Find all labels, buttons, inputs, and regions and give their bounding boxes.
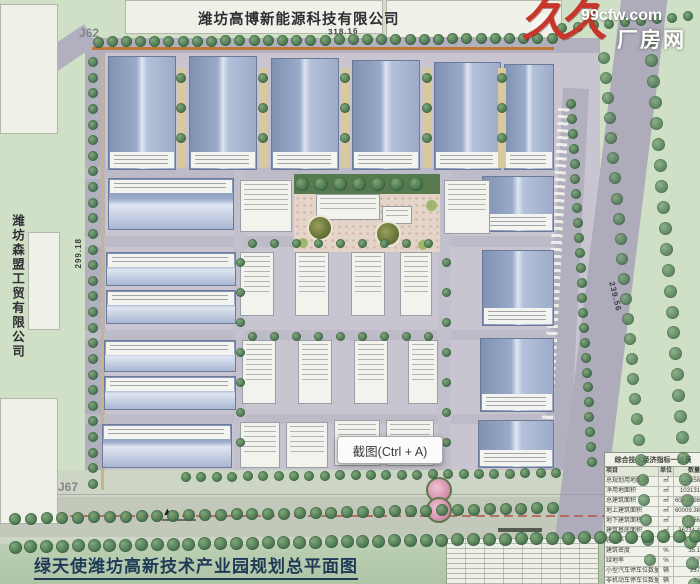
tree xyxy=(625,531,638,544)
tree xyxy=(9,541,22,554)
office-building xyxy=(240,180,292,232)
tree xyxy=(289,471,299,481)
tree xyxy=(270,239,279,248)
office-building xyxy=(286,422,328,468)
tree xyxy=(468,504,480,516)
offsite-building xyxy=(28,232,60,330)
gravel-strip xyxy=(423,68,431,168)
tree xyxy=(227,472,237,482)
building-annotation xyxy=(108,292,234,305)
tree xyxy=(649,96,662,109)
tree xyxy=(340,103,350,113)
tree xyxy=(104,511,116,523)
tree xyxy=(570,159,580,169)
tree xyxy=(657,530,670,543)
factory-building xyxy=(478,420,554,468)
gravel-strip xyxy=(177,68,185,168)
gravel-strip xyxy=(498,68,506,168)
tree xyxy=(422,103,432,113)
tree xyxy=(505,469,515,479)
tree xyxy=(647,75,660,88)
tree xyxy=(452,504,464,516)
watermark: 久久 99cfw.com 厂房网 xyxy=(525,0,700,56)
tree xyxy=(88,276,98,286)
tree xyxy=(88,229,98,239)
plaza-tree-circle xyxy=(307,215,333,241)
tree xyxy=(358,332,367,341)
tree xyxy=(676,431,689,444)
tree xyxy=(689,530,700,543)
tree xyxy=(88,539,101,552)
tree xyxy=(515,532,528,545)
tree xyxy=(404,534,417,547)
left-company-label: 潍坊森盟工贸有限公司 xyxy=(8,214,27,354)
tree xyxy=(88,198,98,208)
building-annotation xyxy=(273,152,337,168)
tree xyxy=(206,36,217,47)
gravel-strip xyxy=(341,68,349,168)
tree xyxy=(88,182,98,192)
tree xyxy=(604,112,616,124)
factory-building xyxy=(102,424,232,468)
tree xyxy=(650,117,663,130)
tree xyxy=(474,469,484,479)
tree xyxy=(320,471,330,481)
road-label-j67: J67 xyxy=(58,480,78,494)
office-building xyxy=(400,252,432,316)
tree xyxy=(666,306,679,319)
tree xyxy=(581,353,591,363)
building-annotation xyxy=(484,214,552,230)
tree xyxy=(402,239,411,248)
tree xyxy=(635,454,647,466)
tree xyxy=(340,133,350,143)
tree xyxy=(295,177,309,191)
tree xyxy=(652,138,665,151)
tree xyxy=(497,103,507,113)
tree xyxy=(215,509,227,521)
tree xyxy=(88,120,98,130)
tree xyxy=(390,177,404,191)
tree xyxy=(620,293,632,305)
tree xyxy=(93,37,104,48)
plan-title: 绿天使潍坊高新技术产业园规划总平面图 xyxy=(34,552,358,580)
tree xyxy=(314,332,323,341)
tree xyxy=(258,73,268,83)
factory-building xyxy=(106,252,236,286)
tree xyxy=(366,470,376,480)
tree xyxy=(578,531,591,544)
tree xyxy=(660,243,673,256)
bush xyxy=(426,200,437,211)
factory-building xyxy=(480,338,554,412)
indicator-row: 非机动车停车位数量辆10 xyxy=(605,577,700,584)
tree xyxy=(309,536,322,549)
tree xyxy=(336,239,345,248)
tree xyxy=(167,538,180,551)
tree xyxy=(178,36,189,47)
tree xyxy=(686,557,699,570)
tree xyxy=(580,338,590,348)
tree xyxy=(624,333,636,345)
tree xyxy=(373,506,385,518)
tree xyxy=(397,470,407,480)
tree xyxy=(562,532,575,545)
building-annotation xyxy=(482,394,552,410)
tree xyxy=(602,92,614,104)
building-annotation xyxy=(436,152,499,168)
tree xyxy=(672,389,685,402)
tree xyxy=(9,513,21,525)
tree xyxy=(246,537,259,550)
tree xyxy=(192,36,203,47)
tree xyxy=(422,73,432,83)
factory-building xyxy=(504,64,554,170)
office-building xyxy=(242,340,276,404)
tree xyxy=(420,534,433,547)
tree xyxy=(428,469,438,479)
tree xyxy=(633,434,645,446)
road-segment xyxy=(92,47,554,50)
tree xyxy=(435,534,448,547)
tree xyxy=(551,468,561,478)
tree xyxy=(293,536,306,549)
office-building xyxy=(351,252,385,316)
tree xyxy=(320,35,331,46)
tree xyxy=(419,34,430,45)
tree xyxy=(674,410,687,423)
tree xyxy=(314,177,328,191)
tree xyxy=(476,33,487,44)
tree xyxy=(627,373,639,385)
building-annotation xyxy=(484,308,552,324)
tree xyxy=(262,536,275,549)
tree xyxy=(119,539,132,552)
tree xyxy=(88,57,98,67)
tree xyxy=(575,248,585,258)
tree xyxy=(236,378,245,387)
tree xyxy=(262,508,274,520)
tree xyxy=(442,258,451,267)
tree xyxy=(497,73,507,83)
tree xyxy=(357,506,369,518)
building-annotation xyxy=(506,152,552,168)
tree xyxy=(151,538,164,551)
tree xyxy=(611,193,623,205)
tree xyxy=(409,177,423,191)
tree xyxy=(371,177,385,191)
tree xyxy=(547,502,559,514)
tree xyxy=(351,470,361,480)
factory-building xyxy=(104,376,236,410)
tree xyxy=(637,474,649,486)
site-plan-image: 潍坊高博新能源科技有限公司 潍坊森盟工贸有限公司 J62 J67 318.16 … xyxy=(0,0,700,584)
tree xyxy=(629,393,641,405)
sidewalk-line xyxy=(0,494,700,495)
tree xyxy=(88,151,98,161)
building-annotation xyxy=(354,152,418,168)
tree xyxy=(389,505,401,517)
tree xyxy=(571,189,581,199)
tree xyxy=(570,174,580,184)
tree xyxy=(88,73,98,83)
tree xyxy=(88,370,98,380)
tree xyxy=(263,35,274,46)
tree xyxy=(304,471,314,481)
tree xyxy=(659,222,672,235)
tree xyxy=(341,535,354,548)
tree xyxy=(442,288,451,297)
office-building xyxy=(354,340,388,404)
factory-building xyxy=(271,58,339,170)
tree xyxy=(681,494,694,507)
factory-building xyxy=(189,56,257,170)
tree xyxy=(657,201,670,214)
tree xyxy=(669,347,682,360)
tree xyxy=(336,332,345,341)
building-annotation xyxy=(106,342,234,355)
tree xyxy=(292,239,301,248)
tree xyxy=(569,144,579,154)
factory-building xyxy=(104,340,236,372)
tree xyxy=(483,533,496,546)
tree xyxy=(584,397,594,407)
tree xyxy=(199,509,211,521)
office-building xyxy=(408,340,438,404)
office-building xyxy=(295,252,329,316)
tree xyxy=(442,348,451,357)
tree xyxy=(664,285,677,298)
tree xyxy=(484,503,496,515)
tree xyxy=(536,468,546,478)
tree xyxy=(340,73,350,83)
factory-building xyxy=(106,290,236,324)
tree xyxy=(622,313,634,325)
tree xyxy=(594,531,607,544)
dimension-left: 299.18 xyxy=(74,238,83,268)
tree xyxy=(576,263,586,273)
tree xyxy=(500,503,512,515)
tree xyxy=(442,318,451,327)
tree xyxy=(274,471,284,481)
tree xyxy=(230,537,243,550)
office-building xyxy=(240,252,274,316)
tree xyxy=(25,513,37,525)
tree xyxy=(88,245,98,255)
tree xyxy=(236,318,245,327)
tree xyxy=(380,239,389,248)
tree xyxy=(236,258,245,267)
tree xyxy=(258,103,268,113)
tree xyxy=(424,332,433,341)
tree xyxy=(231,508,243,520)
tree xyxy=(56,540,69,553)
tree xyxy=(88,323,98,333)
watermark-brand: 厂房网 xyxy=(617,24,686,54)
factory-building xyxy=(108,178,234,230)
tree xyxy=(277,35,288,46)
tree xyxy=(504,33,515,44)
tree xyxy=(176,103,186,113)
factory-building xyxy=(482,250,554,326)
tree xyxy=(270,332,279,341)
gravel-strip xyxy=(259,68,267,168)
tree xyxy=(673,530,686,543)
tree xyxy=(422,133,432,143)
building-annotation xyxy=(110,180,232,193)
tree xyxy=(626,353,638,365)
tree xyxy=(424,239,433,248)
building-annotation xyxy=(108,254,234,267)
tree xyxy=(402,332,411,341)
tree xyxy=(631,413,643,425)
tree xyxy=(644,554,656,566)
tree xyxy=(442,378,451,387)
tree xyxy=(236,288,245,297)
tree xyxy=(442,408,451,417)
tree xyxy=(459,469,469,479)
building-annotation xyxy=(480,450,552,466)
watermark-url: 99cfw.com xyxy=(581,7,662,25)
tree xyxy=(613,213,625,225)
tree xyxy=(236,348,245,357)
tree xyxy=(243,471,253,481)
tree xyxy=(412,470,422,480)
tree xyxy=(489,469,499,479)
tree xyxy=(667,326,680,339)
tree xyxy=(405,505,417,517)
tree xyxy=(291,35,302,46)
tree xyxy=(88,448,98,458)
tree xyxy=(333,177,347,191)
tree xyxy=(88,104,98,114)
tree xyxy=(600,72,612,84)
tree xyxy=(577,278,587,288)
building-annotation xyxy=(110,152,174,168)
tree xyxy=(671,368,684,381)
tree xyxy=(497,133,507,143)
tree xyxy=(655,180,668,193)
offsite-building xyxy=(0,398,58,524)
offsite-building xyxy=(0,4,58,134)
tree xyxy=(88,354,98,364)
tree xyxy=(654,159,667,172)
tree xyxy=(325,507,337,519)
tree xyxy=(579,323,589,333)
tree xyxy=(567,114,577,124)
tree xyxy=(292,332,301,341)
tree xyxy=(72,512,84,524)
tree xyxy=(358,239,367,248)
tree xyxy=(615,233,627,245)
tree xyxy=(88,479,98,489)
tree xyxy=(120,511,132,523)
indicator-row: 小型汽车停车位数量辆237 xyxy=(605,567,700,577)
tree xyxy=(181,472,191,482)
tree xyxy=(248,332,257,341)
tree xyxy=(294,507,306,519)
office-building xyxy=(444,180,490,234)
building-annotation xyxy=(106,378,234,391)
tree xyxy=(249,35,260,46)
tree xyxy=(420,505,432,517)
tree xyxy=(176,73,186,83)
tree xyxy=(568,129,578,139)
tree xyxy=(662,264,675,277)
tree xyxy=(380,332,389,341)
tree xyxy=(490,33,501,44)
screenshot-tooltip-button[interactable]: 截图(Ctrl + A) xyxy=(337,436,443,464)
tree xyxy=(433,34,444,45)
factory-building xyxy=(434,62,501,170)
tree xyxy=(405,34,416,45)
tree xyxy=(236,438,245,447)
tree xyxy=(167,510,179,522)
factory-building xyxy=(108,56,176,170)
building-annotation xyxy=(191,152,255,168)
tree xyxy=(546,532,559,545)
factory-building xyxy=(352,60,420,170)
building-annotation xyxy=(104,426,230,439)
tree xyxy=(248,239,257,248)
tree xyxy=(88,307,98,317)
tree xyxy=(582,368,592,378)
top-company-label: 潍坊高博新能源科技有限公司 xyxy=(198,8,400,29)
tree xyxy=(352,177,366,191)
tree xyxy=(679,473,692,486)
tree xyxy=(88,401,98,411)
tree xyxy=(258,133,268,143)
tree xyxy=(310,507,322,519)
tree xyxy=(566,99,576,109)
tree xyxy=(314,239,323,248)
tree xyxy=(176,133,186,143)
tree xyxy=(212,472,222,482)
tree xyxy=(278,508,290,520)
office-building xyxy=(298,340,332,404)
office-building xyxy=(240,422,280,468)
tree xyxy=(41,512,53,524)
tree xyxy=(515,503,527,515)
tree xyxy=(236,408,245,417)
tree xyxy=(587,457,597,467)
tree xyxy=(136,510,148,522)
tree xyxy=(372,535,385,548)
factory-building xyxy=(482,176,554,232)
tree xyxy=(305,35,316,46)
tree xyxy=(499,533,512,546)
